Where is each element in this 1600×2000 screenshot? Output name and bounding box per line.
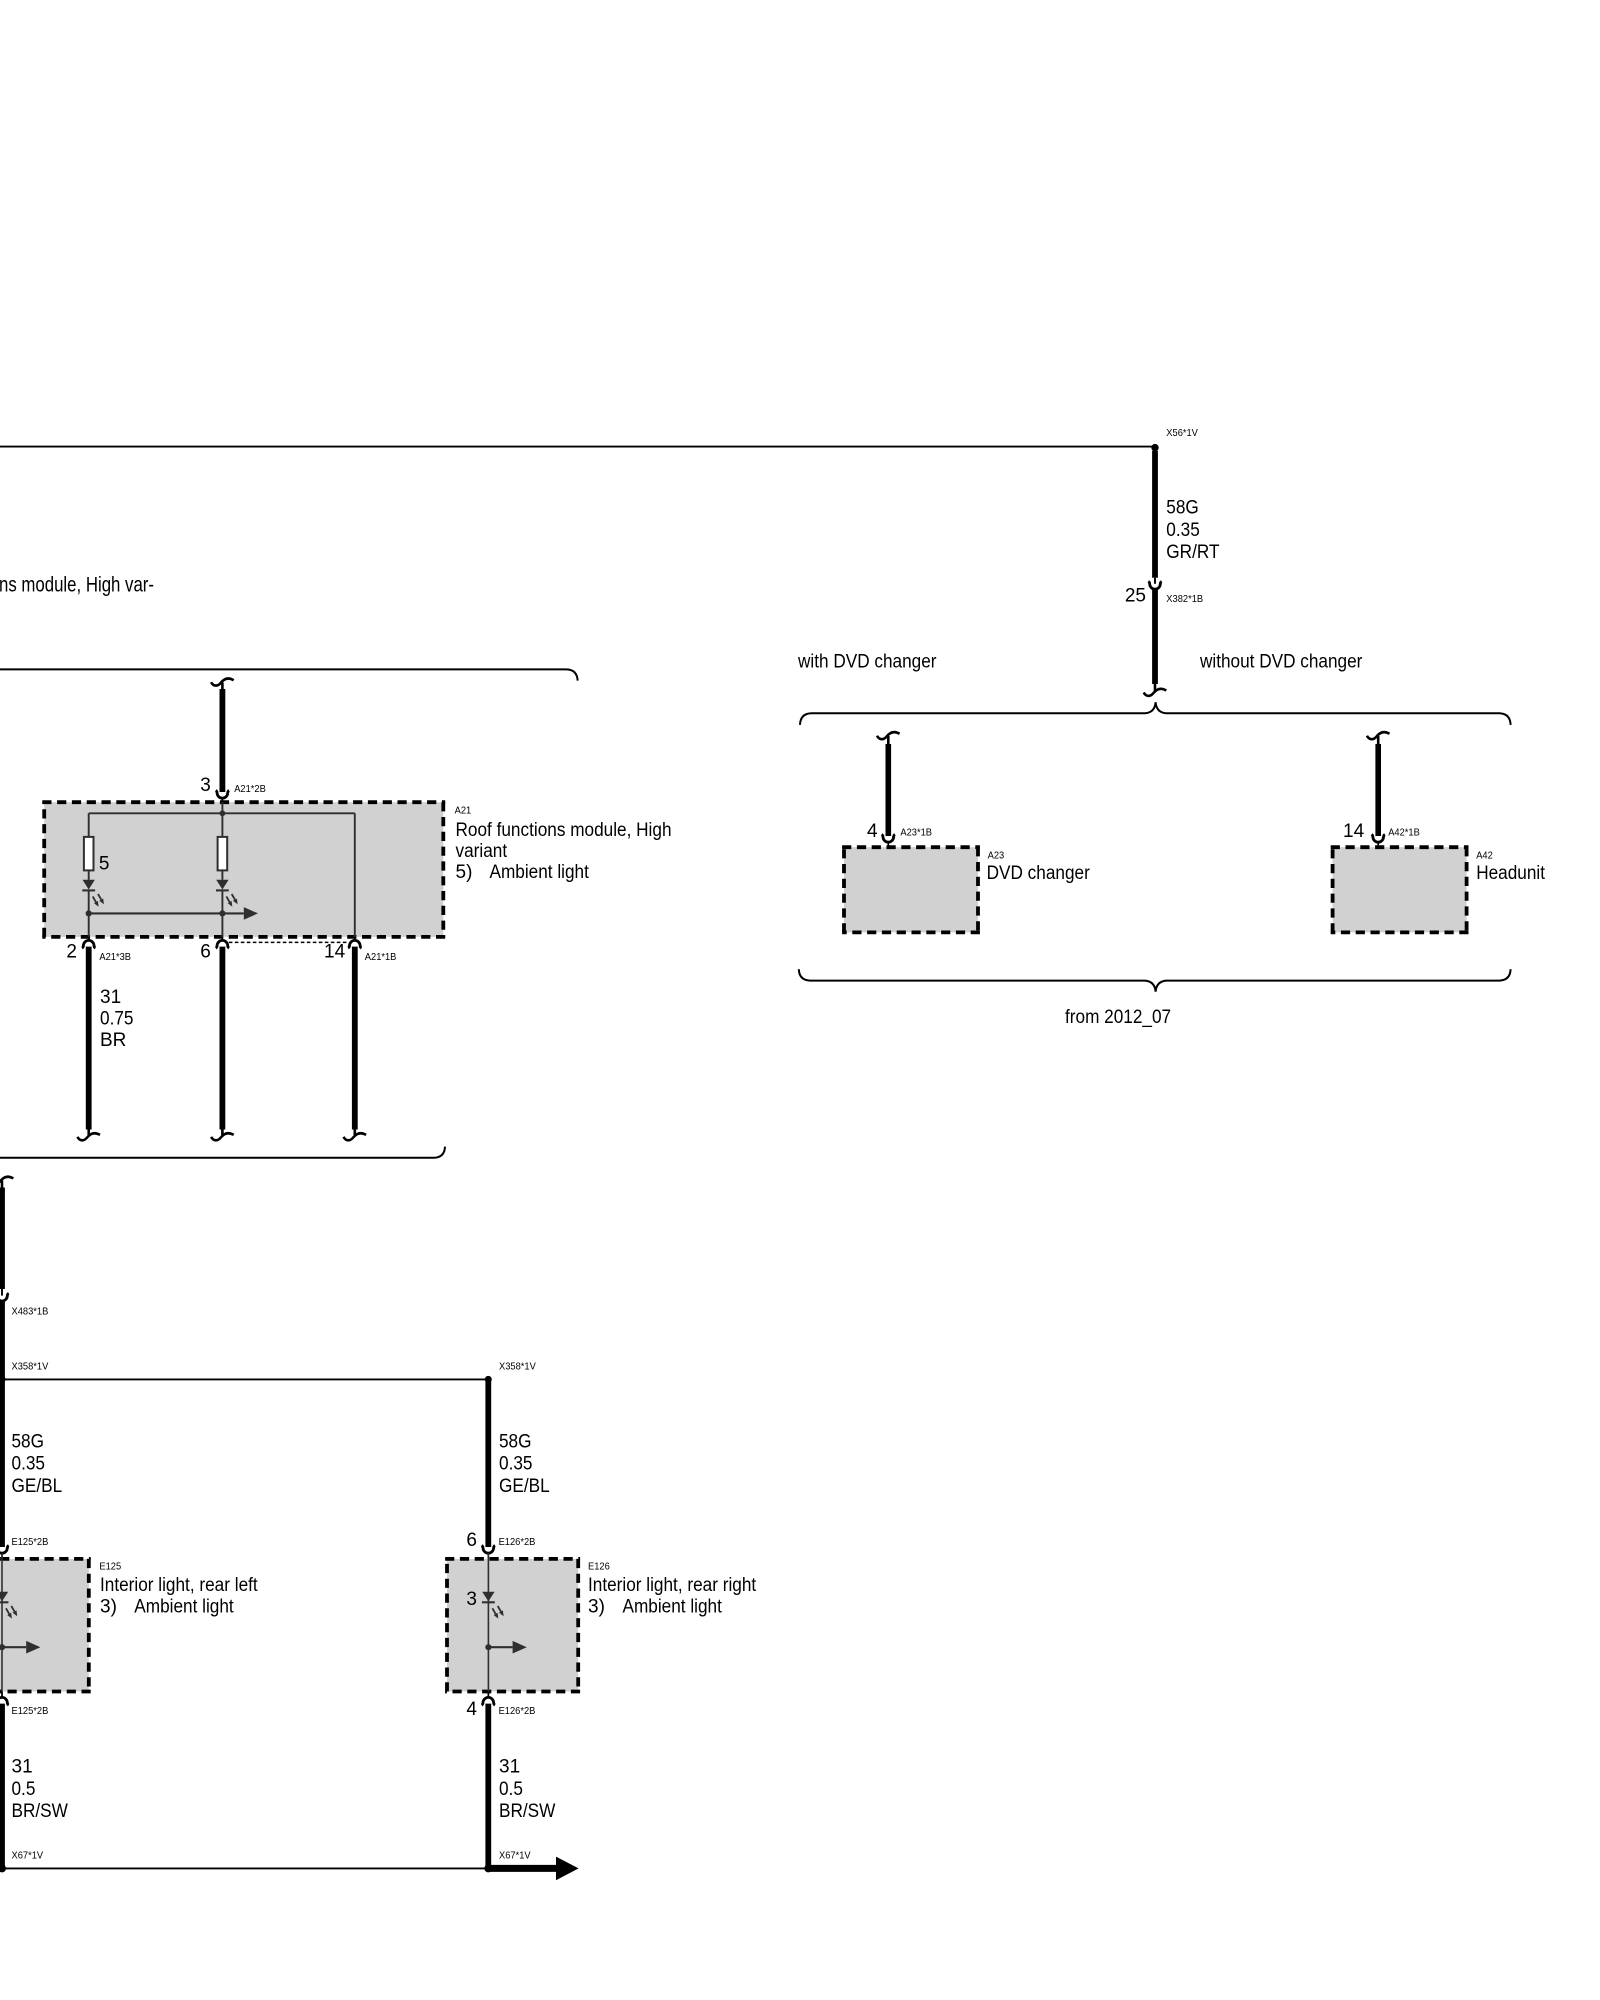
- svg-text:from 2012_07: from 2012_07: [1065, 1007, 1171, 1028]
- svg-text:6: 6: [200, 942, 211, 963]
- svg-text:3: 3: [466, 1589, 477, 1610]
- svg-text:Ambient light: Ambient light: [623, 1596, 723, 1617]
- svg-text:Roof functions module, High: Roof functions module, High: [456, 820, 672, 841]
- svg-text:0.35: 0.35: [499, 1454, 533, 1475]
- svg-text:31: 31: [12, 1757, 33, 1778]
- svg-text:58G: 58G: [499, 1431, 532, 1452]
- svg-text:4: 4: [466, 1699, 477, 1720]
- svg-text:A21: A21: [455, 806, 472, 817]
- svg-text:E126*2B: E126*2B: [499, 1537, 536, 1548]
- svg-text:without DVD changer: without DVD changer: [1199, 652, 1363, 673]
- svg-text:X358*1V: X358*1V: [12, 1362, 49, 1373]
- svg-text:E126: E126: [588, 1562, 610, 1573]
- svg-text:E125*2B: E125*2B: [12, 1706, 49, 1717]
- svg-text:0.5: 0.5: [12, 1779, 36, 1800]
- svg-text:58G: 58G: [12, 1431, 45, 1452]
- svg-text:6: 6: [466, 1530, 477, 1551]
- svg-text:Headunit: Headunit: [1476, 863, 1545, 884]
- svg-text:BR: BR: [100, 1030, 126, 1051]
- svg-text:GR/RT: GR/RT: [1166, 542, 1220, 563]
- svg-text:Interior light, rear left: Interior light, rear left: [100, 1575, 258, 1596]
- svg-text:A42*1B: A42*1B: [1388, 828, 1420, 839]
- svg-text:E126*2B: E126*2B: [499, 1706, 536, 1717]
- svg-text:with DVD changer: with DVD changer: [797, 652, 937, 673]
- svg-text:BR/SW: BR/SW: [499, 1801, 555, 1822]
- svg-text:0.75: 0.75: [100, 1009, 134, 1030]
- svg-text:Interior light, rear right: Interior light, rear right: [588, 1575, 757, 1596]
- svg-text:A21*2B: A21*2B: [234, 784, 266, 795]
- svg-text:A21*3B: A21*3B: [99, 952, 131, 963]
- svg-text:0.35: 0.35: [1166, 520, 1200, 541]
- svg-text:58G: 58G: [1166, 498, 1199, 519]
- svg-text:X483*1B: X483*1B: [12, 1307, 49, 1318]
- svg-text:31: 31: [499, 1757, 520, 1778]
- svg-text:4: 4: [867, 821, 878, 842]
- svg-text:E125*2B: E125*2B: [12, 1537, 49, 1548]
- svg-text:Ambient light: Ambient light: [490, 862, 590, 883]
- svg-text:X56*1V: X56*1V: [1166, 428, 1198, 439]
- svg-text:E125: E125: [99, 1561, 121, 1572]
- svg-text:A23*1B: A23*1B: [900, 828, 932, 839]
- svg-text:0.5: 0.5: [499, 1779, 523, 1800]
- svg-text:5: 5: [99, 853, 110, 874]
- svg-text:3: 3: [200, 775, 211, 796]
- svg-text:DVD changer: DVD changer: [987, 863, 1091, 884]
- svg-text:14: 14: [324, 942, 346, 963]
- svg-text:variant: variant: [456, 841, 508, 862]
- svg-text:X67*1V: X67*1V: [499, 1851, 531, 1862]
- svg-text:X358*1V: X358*1V: [499, 1362, 536, 1373]
- svg-text:5): 5): [456, 862, 473, 883]
- svg-text:25: 25: [1125, 585, 1146, 606]
- svg-text:31: 31: [100, 987, 121, 1008]
- svg-text:GE/BL: GE/BL: [12, 1476, 63, 1497]
- svg-text:2: 2: [66, 942, 77, 963]
- svg-text:ns module, High var-: ns module, High var-: [0, 573, 154, 597]
- svg-text:3): 3): [588, 1596, 605, 1617]
- svg-text:X67*1V: X67*1V: [12, 1851, 44, 1862]
- svg-text:Ambient light: Ambient light: [134, 1596, 234, 1617]
- svg-text:0.35: 0.35: [12, 1454, 46, 1475]
- svg-text:A21*1B: A21*1B: [365, 952, 397, 963]
- svg-text:GE/BL: GE/BL: [499, 1476, 550, 1497]
- svg-text:14: 14: [1343, 821, 1365, 842]
- svg-text:A42: A42: [1476, 850, 1493, 861]
- svg-text:BR/SW: BR/SW: [12, 1801, 68, 1822]
- svg-text:X382*1B: X382*1B: [1166, 594, 1203, 605]
- svg-text:3): 3): [100, 1596, 117, 1617]
- svg-text:A23: A23: [988, 850, 1005, 861]
